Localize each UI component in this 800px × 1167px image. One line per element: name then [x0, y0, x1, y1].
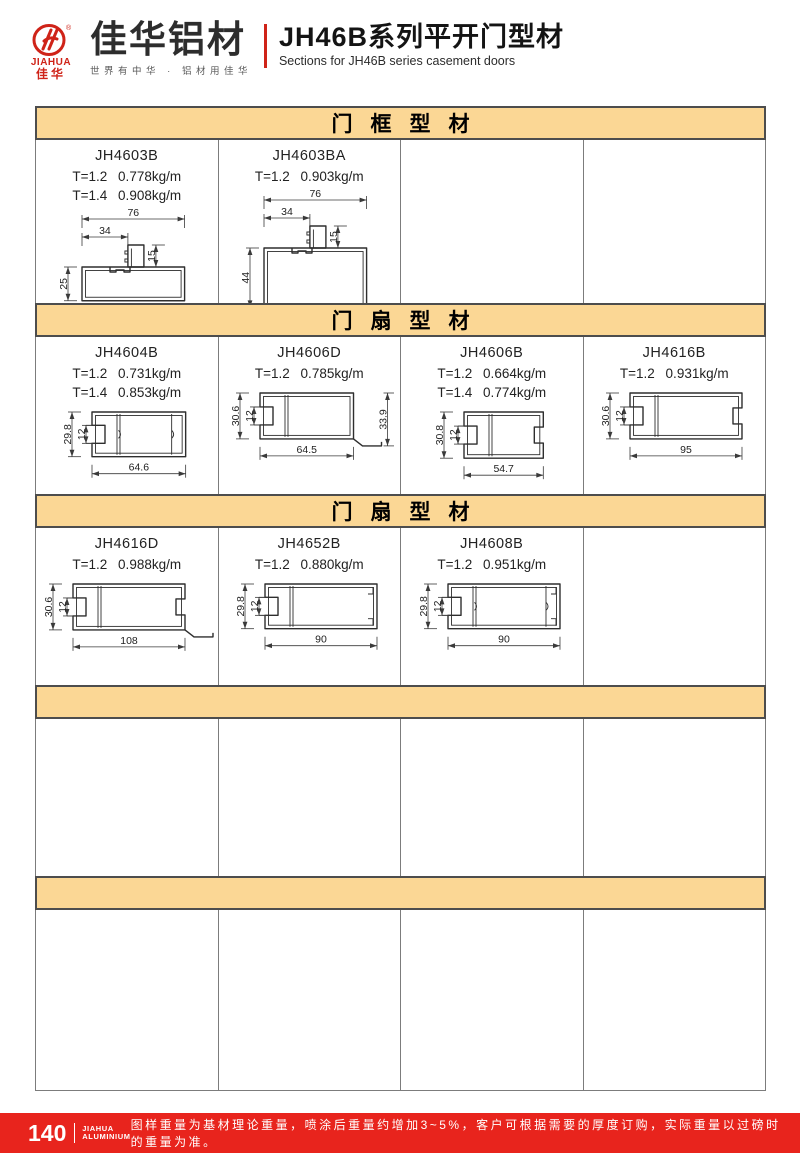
section-band-label: 门扇型材 [314, 496, 488, 526]
section-band: 门扇型材 [35, 494, 766, 528]
profile-cross-section-drawing: 76341544 [234, 188, 384, 303]
profile-cell-jh4606d: JH4606DT=1.2 0.785kg/m30.61264.533.9 [219, 337, 402, 494]
profile-cross-section-drawing: 29.81264.6 [56, 404, 198, 488]
profile-row: JH4604BT=1.2 0.731kg/mT=1.4 0.853kg/m29.… [35, 337, 766, 495]
profile-cell-empty [401, 719, 584, 876]
brand-tagline: 世界有中华 · 铝材用佳华 [90, 63, 252, 77]
footer-brand: JIAHUA ALUMINIUM [82, 1125, 130, 1142]
profile-cell-jh4616b: JH4616BT=1.2 0.931kg/m30.61295 [584, 337, 766, 494]
profile-cross-section-drawing: 30.81254.7 [428, 404, 555, 489]
profile-cell-empty [584, 910, 766, 1090]
profile-weight: T=1.2 0.880kg/m [255, 555, 364, 574]
section-band [35, 876, 766, 910]
svg-text:12: 12 [245, 410, 256, 422]
svg-text:12: 12 [77, 428, 88, 440]
profile-cell-jh4608b: JH4608BT=1.2 0.951kg/m29.81290 [401, 528, 584, 685]
profile-cell-jh4603ba: JH4603BAT=1.2 0.903kg/m76341544 [219, 140, 402, 303]
profile-cell-empty [584, 719, 766, 876]
svg-text:30.6: 30.6 [601, 406, 612, 427]
profile-cross-section-drawing: 30.61264.533.9 [224, 385, 394, 470]
profile-cross-section-drawing: 76341525 [52, 207, 202, 303]
svg-text:30.8: 30.8 [435, 425, 446, 446]
profile-cross-section-drawing: 30.612108 [37, 576, 217, 661]
page-header: ® JIAHUA 佳华 佳华铝材 世界有中华 · 铝材用佳华 JH46B系列平开… [22, 20, 782, 82]
svg-text:34: 34 [281, 207, 293, 218]
profile-cell-jh4616d: JH4616DT=1.2 0.988kg/m30.612108 [36, 528, 219, 685]
profile-row: JH4616DT=1.2 0.988kg/m30.612108JH4652BT=… [35, 528, 766, 686]
page-number: 140 [28, 1113, 66, 1153]
svg-text:15: 15 [146, 250, 158, 262]
profile-cell-empty [401, 910, 584, 1090]
svg-text:76: 76 [127, 207, 139, 219]
profile-weight: T=1.2 0.664kg/m [437, 364, 546, 383]
svg-text:64.5: 64.5 [297, 445, 318, 456]
svg-text:90: 90 [315, 635, 327, 646]
profile-cross-section-drawing: 29.81290 [229, 576, 389, 660]
profile-cell-empty [219, 910, 402, 1090]
svg-text:12: 12 [250, 600, 261, 612]
page-footer: 140 JIAHUA ALUMINIUM 图样重量为基材理论重量，喷涂后重量约增… [0, 1113, 800, 1153]
profile-code: JH4603B [95, 148, 158, 164]
svg-text:12: 12 [58, 601, 69, 613]
profile-cross-section-drawing: 30.61295 [594, 385, 754, 470]
profile-table: 门框型材JH4603BT=1.2 0.778kg/mT=1.4 0.908kg/… [35, 107, 766, 1091]
svg-text:34: 34 [99, 225, 111, 237]
svg-text:33.9: 33.9 [379, 409, 390, 430]
svg-text:30.6: 30.6 [44, 597, 55, 618]
profile-code: JH4603BA [273, 148, 346, 164]
profile-row [35, 910, 766, 1091]
footer-divider [74, 1123, 75, 1143]
section-band: 门扇型材 [35, 303, 766, 337]
page-subtitle: Sections for JH46B series casement doors [279, 54, 564, 68]
svg-text:64.6: 64.6 [129, 463, 150, 474]
profile-weight: T=1.4 0.774kg/m [437, 383, 546, 402]
svg-text:108: 108 [120, 636, 138, 647]
profile-cell-jh4604b: JH4604BT=1.2 0.731kg/mT=1.4 0.853kg/m29.… [36, 337, 219, 494]
svg-text:29.8: 29.8 [63, 424, 74, 445]
svg-text:12: 12 [433, 600, 444, 612]
section-band-label: 门框型材 [314, 108, 488, 138]
profile-row [35, 719, 766, 877]
profile-code: JH4616D [95, 536, 159, 552]
profile-cell-empty [36, 719, 219, 876]
svg-text:90: 90 [498, 635, 510, 646]
svg-text:12: 12 [449, 429, 460, 441]
profile-code: JH4606B [460, 345, 523, 361]
profile-weight: T=1.2 0.731kg/m [72, 364, 181, 383]
profile-code: JH4652B [278, 536, 341, 552]
svg-text:30.6: 30.6 [231, 406, 242, 427]
profile-weight: T=1.2 0.951kg/m [437, 555, 546, 574]
profile-weight: T=1.4 0.908kg/m [72, 186, 181, 205]
footer-brand-line2: ALUMINIUM [82, 1133, 130, 1142]
profile-cell-empty [36, 910, 219, 1090]
profile-weight: T=1.4 0.853kg/m [72, 383, 181, 402]
logo-text-cn: 佳华 [22, 68, 80, 81]
profile-cell-jh4652b: JH4652BT=1.2 0.880kg/m29.81290 [219, 528, 402, 685]
section-band-label: 门扇型材 [314, 305, 488, 335]
profile-cross-section-drawing: 29.81290 [412, 576, 572, 660]
svg-text:44: 44 [241, 272, 252, 284]
page-title: JH46B系列平开门型材 [279, 22, 564, 52]
footer-note: 图样重量为基材理论重量，喷涂后重量约增加3~5%，客户可根据需要的厚度订购，实际… [131, 1116, 784, 1150]
profile-code: JH4606D [277, 345, 341, 361]
profile-weight: T=1.2 0.903kg/m [255, 167, 364, 186]
jiahua-logo-icon: ® [29, 22, 73, 58]
company-logo: ® JIAHUA 佳华 [22, 22, 80, 81]
profile-cell-empty [219, 719, 402, 876]
profile-cell-jh4603b: JH4603BT=1.2 0.778kg/mT=1.4 0.908kg/m763… [36, 140, 219, 303]
profile-weight: T=1.2 0.988kg/m [72, 555, 181, 574]
brand-name: 佳华铝材 [90, 20, 252, 60]
profile-weight: T=1.2 0.785kg/m [255, 364, 364, 383]
svg-text:29.8: 29.8 [419, 596, 430, 617]
profile-cell-empty [401, 140, 584, 303]
section-band [35, 685, 766, 719]
profile-code: JH4608B [460, 536, 523, 552]
svg-text:®: ® [66, 24, 72, 32]
header-divider [264, 24, 267, 68]
profile-row: JH4603BT=1.2 0.778kg/mT=1.4 0.908kg/m763… [35, 140, 766, 304]
section-band: 门框型材 [35, 106, 766, 140]
profile-weight: T=1.2 0.778kg/m [72, 167, 181, 186]
profile-code: JH4616B [643, 345, 706, 361]
svg-text:95: 95 [680, 445, 692, 456]
profile-cell-jh4606b: JH4606BT=1.2 0.664kg/mT=1.4 0.774kg/m30.… [401, 337, 584, 494]
svg-text:12: 12 [615, 410, 626, 422]
profile-cell-empty [584, 140, 766, 303]
profile-cell-empty [584, 528, 766, 685]
svg-text:29.8: 29.8 [236, 596, 247, 617]
svg-text:25: 25 [58, 278, 70, 290]
profile-code: JH4604B [95, 345, 158, 361]
svg-text:76: 76 [310, 189, 322, 200]
profile-weight: T=1.2 0.931kg/m [620, 364, 729, 383]
svg-text:54.7: 54.7 [494, 464, 515, 475]
svg-text:15: 15 [329, 231, 340, 243]
